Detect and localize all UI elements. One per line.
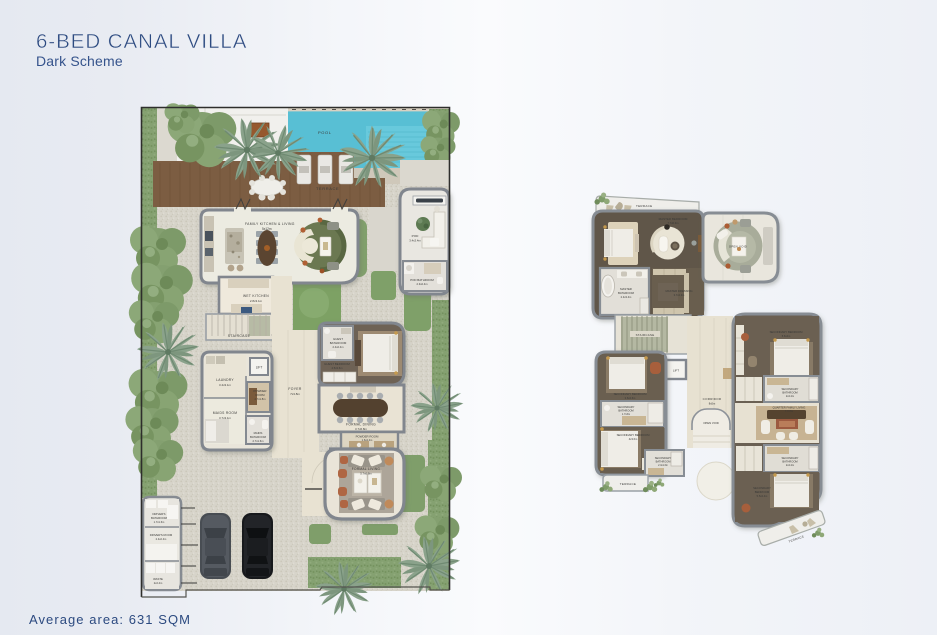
svg-text:POD: POD [412,234,419,238]
svg-text:5x12m: 5x12m [262,227,272,231]
svg-text:FAMILY KITCHEN & LIVING: FAMILY KITCHEN & LIVING [245,222,295,226]
svg-text:4.5x3.6m: 4.5x3.6m [331,366,343,370]
svg-text:2.7x1.8m: 2.7x1.8m [254,397,266,401]
svg-text:MASTER DRESSING: MASTER DRESSING [665,289,692,293]
svg-text:2x4.2m: 2x4.2m [786,395,794,398]
svg-text:4x3.6m: 4x3.6m [629,437,638,441]
svg-text:SECONDARY BEDROOM: SECONDARY BEDROOM [614,392,648,396]
svg-text:POD BATHROOM: POD BATHROOM [410,278,434,282]
svg-text:8x5m: 8x5m [709,402,716,406]
svg-text:7x3.8m: 7x3.8m [290,392,300,396]
svg-text:SECONDARY BEDROOM: SECONDARY BEDROOM [617,433,651,437]
svg-text:BATHROOM: BATHROOM [782,391,798,395]
svg-text:5.7x6.8m: 5.7x6.8m [360,472,372,476]
svg-text:BEDROOM: BEDROOM [755,490,770,494]
svg-text:LIFT: LIFT [256,366,263,370]
svg-text:TERRACE: TERRACE [316,186,339,191]
svg-text:BATHROOM: BATHROOM [250,435,267,439]
svg-text:2.7x1.6m: 2.7x1.6m [252,439,264,443]
svg-text:SECONDARY: SECONDARY [782,387,799,391]
svg-text:LIFT: LIFT [673,369,679,373]
svg-text:2.4x2.4m: 2.4x2.4m [156,537,167,541]
svg-text:FORMAL LIVING: FORMAL LIVING [352,467,381,471]
svg-text:2.4x2.4m: 2.4x2.4m [332,345,344,349]
svg-text:SECONDARY BEDROOM: SECONDARY BEDROOM [770,330,804,334]
svg-text:2x4.2m: 2x4.2m [786,464,794,467]
svg-text:SECONDARY: SECONDARY [655,456,672,460]
svg-text:3.4x3.4m: 3.4x3.4m [409,239,421,243]
svg-text:TERRACE: TERRACE [620,482,636,486]
svg-text:OPEN VOID: OPEN VOID [703,421,719,425]
svg-text:STAIRCASE: STAIRCASE [636,333,655,337]
svg-text:DRIVER'S ROOM: DRIVER'S ROOM [150,533,173,537]
svg-text:SECONDARY: SECONDARY [782,456,799,460]
svg-text:WASTE: WASTE [153,577,163,581]
svg-text:FORMAL DINING: FORMAL DINING [346,423,376,427]
svg-text:QUARTER FAMILY LIVING: QUARTER FAMILY LIVING [773,406,806,410]
svg-text:BATHROOM: BATHROOM [330,341,347,345]
svg-text:2.4x1.6m: 2.4x1.6m [658,464,668,467]
svg-text:MASTER BEDROOM: MASTER BEDROOM [659,217,688,221]
svg-text:STAIRCASE: STAIRCASE [228,334,251,338]
svg-text:CORRIDOR: CORRIDOR [703,397,722,401]
svg-text:BATHROOM: BATHROOM [618,409,634,413]
svg-text:POOL: POOL [318,130,332,135]
svg-text:3.7x3.1m: 3.7x3.1m [219,416,231,420]
svg-text:OPEN VOID: OPEN VOID [729,245,747,249]
svg-text:2.4x3.4m: 2.4x3.4m [621,295,632,299]
svg-text:BATHROOM: BATHROOM [618,291,635,295]
svg-text:2.8x3.1m: 2.8x3.1m [250,299,263,303]
svg-text:1.6x4.4m: 1.6x4.4m [362,438,373,442]
svg-text:WET KITCHEN: WET KITCHEN [243,294,269,298]
svg-text:BATHROOM: BATHROOM [782,460,798,464]
svg-text:BATHROOM: BATHROOM [656,460,671,464]
svg-text:1.7x3m: 1.7x3m [622,413,630,416]
svg-text:GUEST BEDROOM: GUEST BEDROOM [324,362,350,366]
svg-text:3.7x6.8m: 3.7x6.8m [355,427,367,431]
svg-text:BATHROOM: BATHROOM [151,516,168,520]
svg-text:2x2.4m: 2x2.4m [154,581,163,585]
svg-text:TERRACE: TERRACE [636,204,652,208]
svg-text:5.6x4m: 5.6x4m [782,334,791,338]
svg-text:FOYER: FOYER [288,387,301,391]
svg-text:ROOM: ROOM [256,393,266,397]
svg-text:SECONDARY: SECONDARY [618,405,635,409]
svg-text:2.3x2.4m: 2.3x2.4m [416,282,428,286]
svg-text:3.6x4.6m: 3.6x4.6m [625,396,636,400]
svg-text:7.7x7m: 7.7x7m [785,410,793,413]
svg-text:1.7x1.6m: 1.7x1.6m [154,520,165,524]
svg-text:3.7x4.3m: 3.7x4.3m [674,293,685,297]
svg-text:3.4x3.1m: 3.4x3.1m [219,383,231,387]
svg-text:7.7x6.3m: 7.7x6.3m [667,221,679,225]
svg-text:LAUNDRY: LAUNDRY [216,378,234,382]
svg-text:POWDER ROOM: POWDER ROOM [356,435,379,439]
svg-text:MAIDS ROOM: MAIDS ROOM [213,411,238,415]
svg-text:5.5x4.4m: 5.5x4.4m [757,494,768,498]
